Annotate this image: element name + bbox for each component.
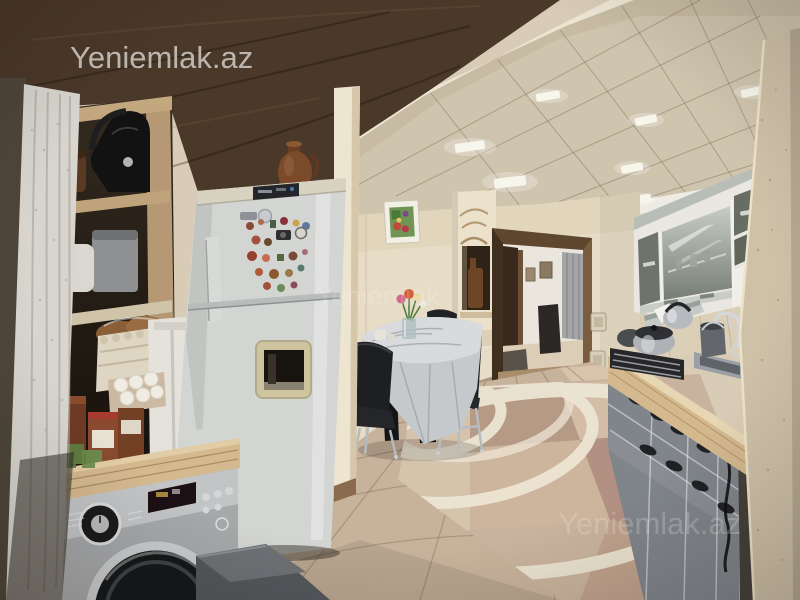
photo-canvas [0,0,800,600]
vignette [0,0,800,600]
kitchen-photo: Yeniemlak.az Yeniemlak Yeniemlak.az [0,0,800,600]
